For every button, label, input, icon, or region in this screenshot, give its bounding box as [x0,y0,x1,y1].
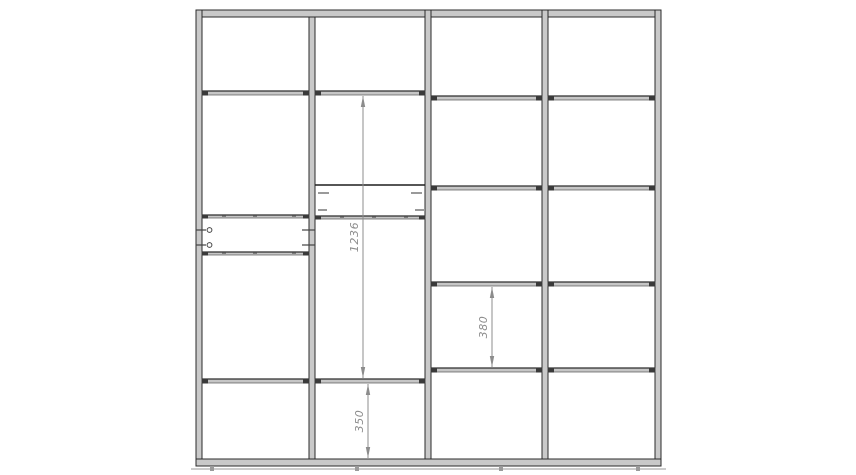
dim-380-arrow-down [490,356,494,367]
shelf-col1-thin-b-tick-1 [222,253,226,254]
divider-3 [542,10,548,459]
shelf-col3-4-cap-right [536,368,542,373]
shelf-col1-thin-a-cap-left [202,215,208,219]
bracket-col2-left-a [318,192,329,194]
shelf-col1-top-cap-right [303,91,309,96]
shelf-col2-bottom-cap-left [315,379,321,384]
shelf-col4-2-cap-right [649,186,655,191]
shelf-col3-2 [431,186,542,190]
dim-350-arrow-up [366,384,370,395]
shelf-col2-mid-cap-left [315,216,321,220]
pullout-rod-b-pin-circle [207,243,212,248]
foot-mark-4 [636,466,640,471]
shelf-col1-thin-a-tick-3 [292,216,296,217]
foot-mark-3 [499,466,503,471]
technical-drawing-canvas: 1236380350 [0,0,856,475]
shelf-col2-mid-tick-2 [372,217,376,218]
shelf-col4-1-cap-left [548,96,554,101]
foot-mark-1 [210,466,214,471]
shelf-col2-bottom-cap-right [419,379,425,384]
bracket-col2-right-b [415,209,425,211]
shelf-col1-thin-a-tick-2 [253,216,257,217]
left-side-panel [196,10,202,466]
shelf-col4-2 [548,186,655,190]
dim-350-label: 350 [353,410,366,433]
shelf-col2-top-cap-right [419,91,425,96]
shelf-col1-thin-b-cap-right [303,252,309,256]
shelf-col2-mid-tick-1 [340,217,344,218]
dim-380-label: 380 [477,316,490,339]
shelf-col4-4-cap-right [649,368,655,373]
shelf-col1-top-cap-left [202,91,208,96]
shelf-col4-4-cap-left [548,368,554,373]
shelf-col2-mid-cap-right [419,216,425,220]
shelf-col2-mid-tick-3 [404,217,408,218]
bottom-panel [196,459,661,466]
dim-350-arrow-down [366,447,370,458]
cabinet-frame-drawing: 1236380350 [0,0,856,475]
shelf-col4-1-cap-right [649,96,655,101]
shelf-col1-thin-b-cap-left [202,252,208,256]
shelf-col3-1-cap-left [431,96,437,101]
divider-1 [309,17,315,459]
foot-mark-2 [355,466,359,471]
shelf-col3-3-cap-right [536,282,542,287]
shelf-col3-2-cap-right [536,186,542,191]
shelf-col4-3-cap-right [649,282,655,287]
shelf-col3-3-cap-left [431,282,437,287]
shelf-col1-bottom-cap-left [202,379,208,384]
shelf-col1-bottom-cap-right [303,379,309,384]
shelf-col4-2-cap-left [548,186,554,191]
pullout-rod-a-pin-circle [207,228,212,233]
dim-1236-arrow-down [361,367,365,378]
divider-2 [425,10,431,459]
bracket-col2-right-a [411,192,422,194]
dim-380-arrow-up [490,287,494,298]
dim-1236-arrow-up [361,96,365,107]
shelf-col3-4-cap-left [431,368,437,373]
bracket-col2-left-b [318,209,327,211]
shelf-col1-thin-a-tick-1 [222,216,226,217]
shelf-col4-3-cap-left [548,282,554,287]
shelf-col1-thin-b-tick-3 [292,253,296,254]
right-side-panel [655,10,661,466]
shelf-col3-1-cap-right [536,96,542,101]
shelf-col1-thin-b-tick-2 [253,253,257,254]
shelf-col3-2-cap-left [431,186,437,191]
shelf-col1-thin-a-cap-right [303,215,309,219]
dim-1236-label: 1236 [348,222,361,252]
shelf-col2-top-cap-left [315,91,321,96]
